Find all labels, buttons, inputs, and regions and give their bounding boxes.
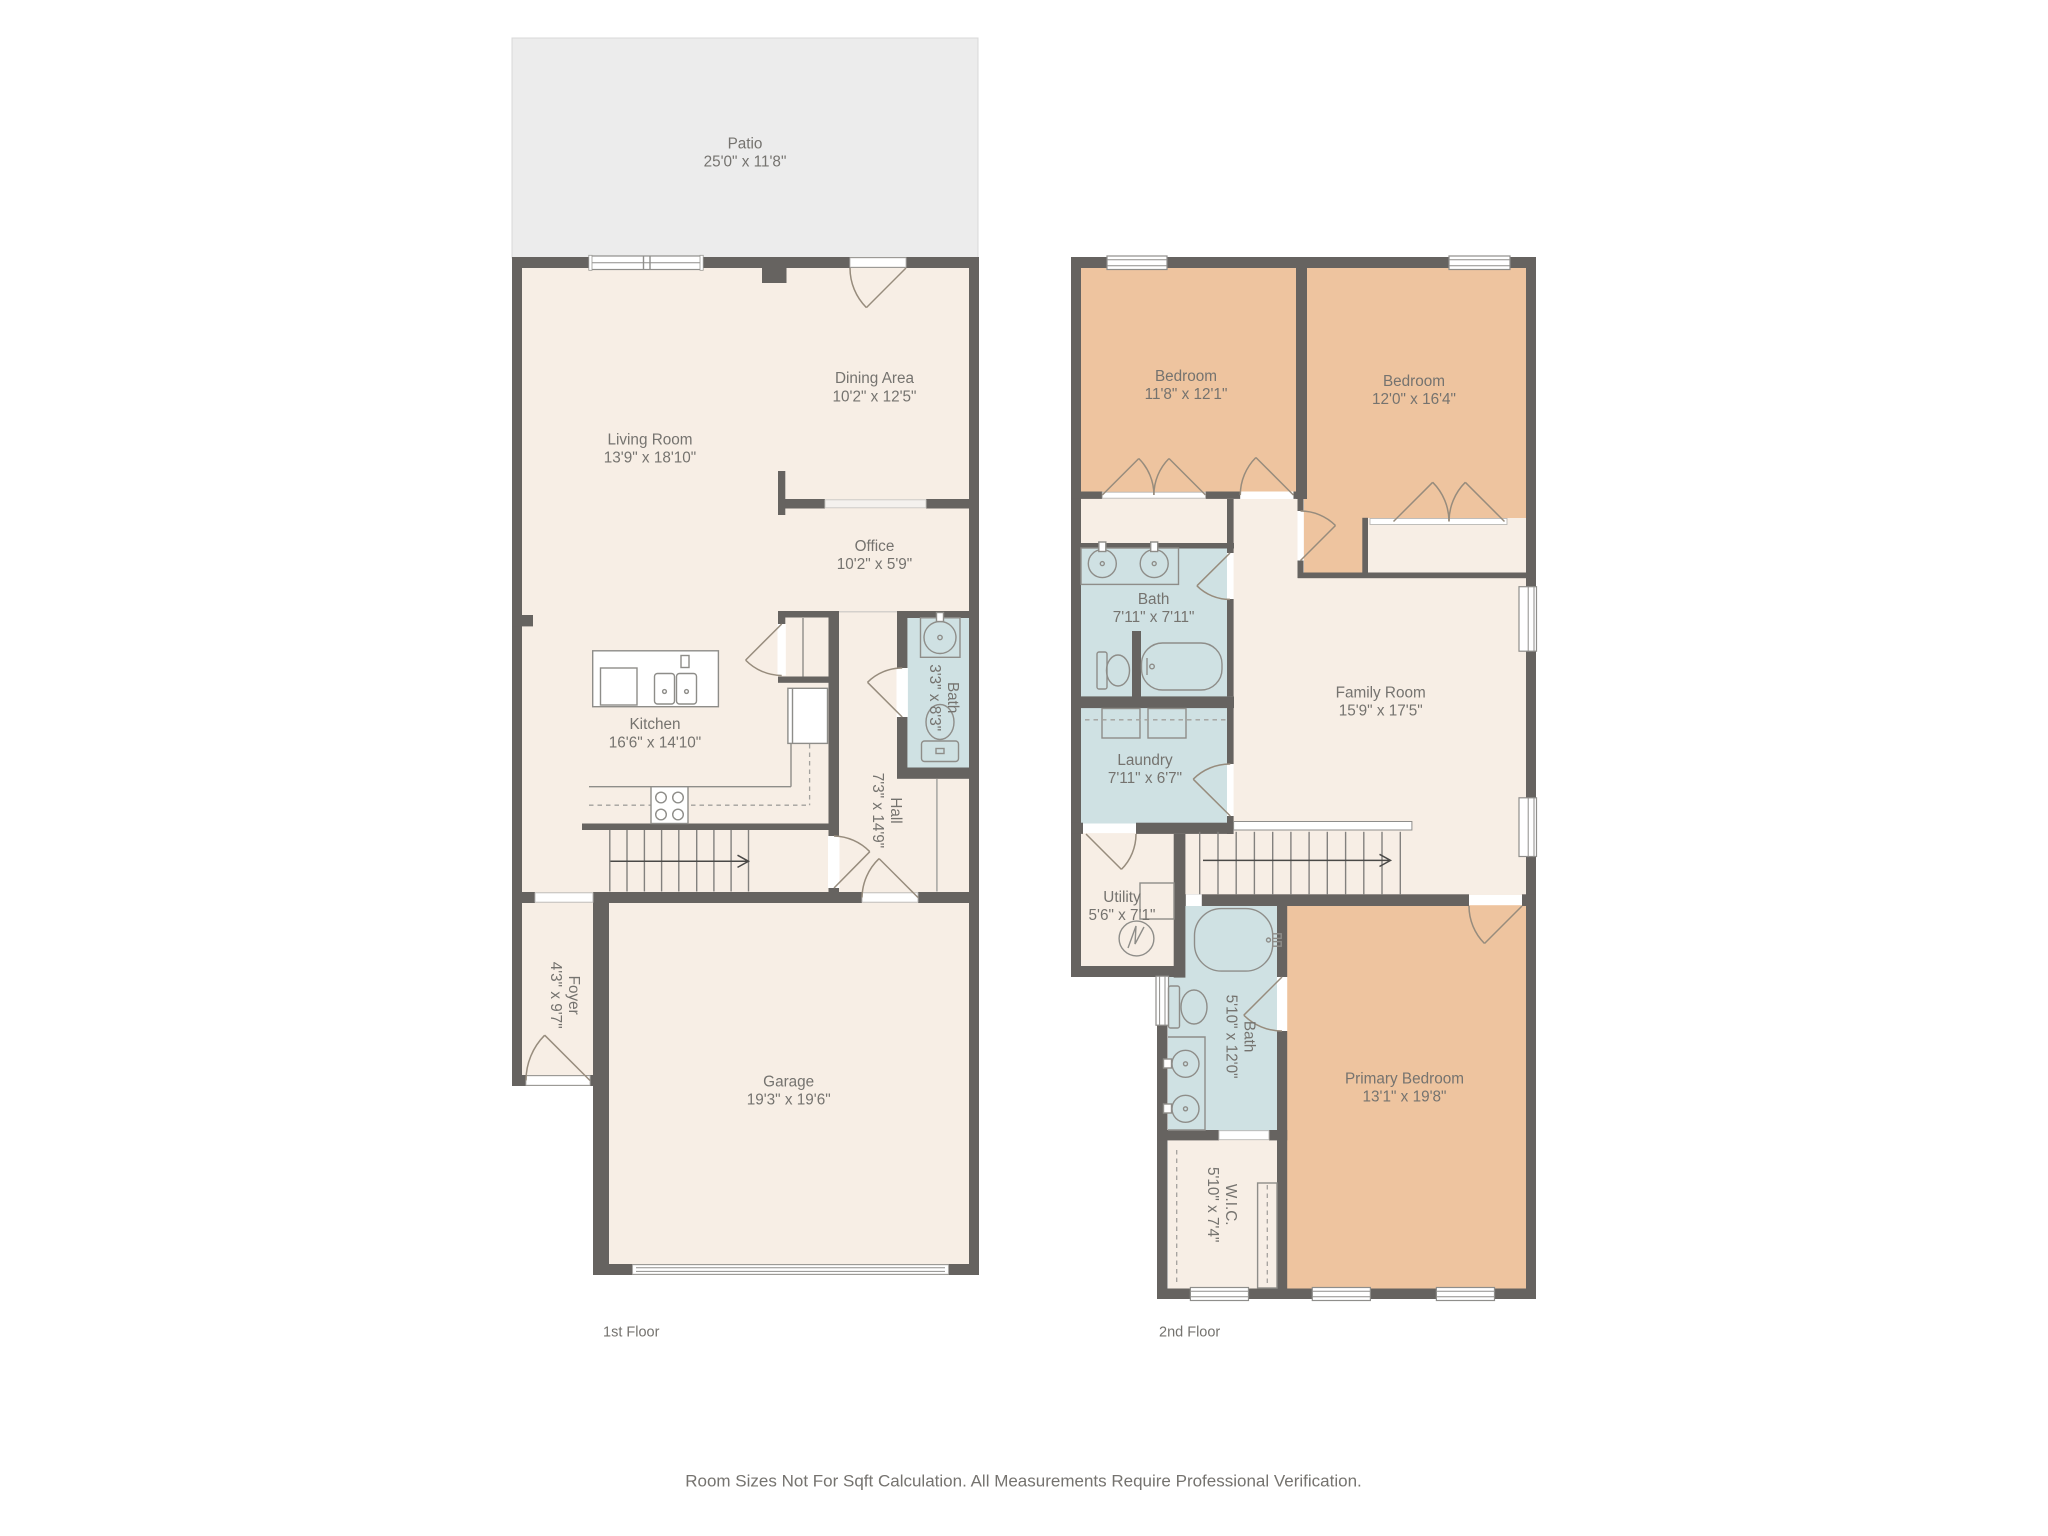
svg-text:12'0" x 16'4": 12'0" x 16'4": [1372, 391, 1456, 408]
svg-text:7'11" x 6'7": 7'11" x 6'7": [1108, 770, 1182, 787]
svg-text:Garage: Garage: [763, 1074, 814, 1091]
svg-text:1st Floor: 1st Floor: [603, 1325, 660, 1341]
svg-text:Primary Bedroom: Primary Bedroom: [1345, 1071, 1464, 1088]
svg-text:10'2" x 5'9": 10'2" x 5'9": [837, 556, 912, 573]
svg-text:13'1" x 19'8": 13'1" x 19'8": [1363, 1089, 1447, 1106]
svg-text:13'9" x 18'10": 13'9" x 18'10": [604, 450, 696, 467]
svg-text:Bath: Bath: [944, 682, 961, 713]
svg-text:Room Sizes Not For Sqft Calcul: Room Sizes Not For Sqft Calculation. All…: [685, 1472, 1362, 1491]
svg-text:7'11" x 7'11": 7'11" x 7'11": [1113, 609, 1195, 626]
svg-text:Laundry: Laundry: [1117, 752, 1173, 769]
svg-text:7'3" x 14'9": 7'3" x 14'9": [869, 773, 886, 848]
svg-text:Bedroom: Bedroom: [1155, 368, 1217, 385]
svg-text:Hall: Hall: [887, 797, 904, 823]
svg-text:Foyer: Foyer: [565, 976, 582, 1015]
svg-text:Kitchen: Kitchen: [629, 716, 680, 733]
svg-text:10'2" x 12'5": 10'2" x 12'5": [833, 389, 917, 406]
svg-text:16'6" x 14'10": 16'6" x 14'10": [609, 735, 701, 752]
svg-text:5'10" x 12'0": 5'10" x 12'0": [1222, 995, 1239, 1079]
svg-text:11'8" x 12'1": 11'8" x 12'1": [1145, 386, 1228, 403]
svg-text:2nd Floor: 2nd Floor: [1159, 1325, 1220, 1341]
svg-text:15'9" x 17'5": 15'9" x 17'5": [1339, 703, 1423, 720]
svg-text:19'3" x 19'6": 19'3" x 19'6": [747, 1092, 831, 1109]
svg-text:Office: Office: [855, 538, 895, 555]
svg-text:Bath: Bath: [1240, 1021, 1257, 1052]
svg-text:25'0" x 11'8": 25'0" x 11'8": [704, 154, 787, 171]
svg-text:Dining Area: Dining Area: [835, 370, 915, 387]
svg-text:Patio: Patio: [728, 136, 763, 153]
svg-text:Bedroom: Bedroom: [1383, 373, 1445, 390]
svg-text:4'3" x 9'7": 4'3" x 9'7": [547, 962, 564, 1029]
svg-text:Family Room: Family Room: [1336, 685, 1426, 702]
svg-text:Living Room: Living Room: [607, 432, 692, 449]
svg-text:Utility: Utility: [1103, 889, 1141, 906]
svg-text:5'10" x 7'4": 5'10" x 7'4": [1204, 1167, 1221, 1242]
svg-text:W.I.C.: W.I.C.: [1222, 1184, 1239, 1226]
svg-text:Bath: Bath: [1138, 591, 1169, 608]
svg-text:3'3" x 8'3": 3'3" x 8'3": [926, 664, 943, 731]
svg-text:5'6" x 7'1": 5'6" x 7'1": [1089, 907, 1156, 924]
